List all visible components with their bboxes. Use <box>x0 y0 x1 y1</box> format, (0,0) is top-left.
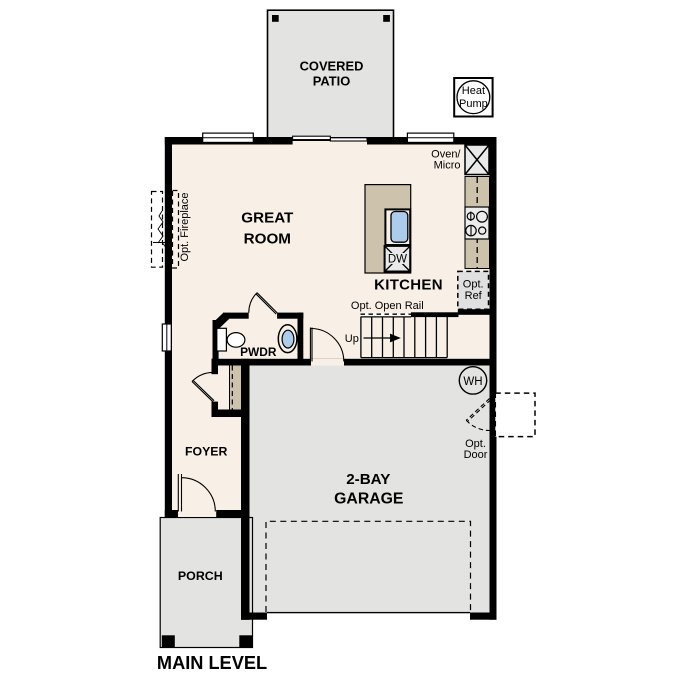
svg-text:Pump: Pump <box>459 98 488 110</box>
svg-text:Door: Door <box>464 449 488 461</box>
svg-text:KITCHEN: KITCHEN <box>374 277 443 294</box>
svg-text:PORCH: PORCH <box>178 569 223 583</box>
svg-text:GREAT: GREAT <box>241 210 294 227</box>
svg-text:MAIN LEVEL: MAIN LEVEL <box>157 653 267 673</box>
svg-text:Heat: Heat <box>462 85 485 97</box>
svg-text:COVERED: COVERED <box>300 59 364 74</box>
svg-text:ROOM: ROOM <box>244 230 291 247</box>
svg-text:Up: Up <box>345 333 359 345</box>
svg-text:DW: DW <box>388 254 407 266</box>
svg-text:FOYER: FOYER <box>185 444 227 458</box>
svg-text:PATIO: PATIO <box>313 74 350 89</box>
svg-text:Opt. Open Rail: Opt. Open Rail <box>351 300 424 312</box>
svg-text:Opt. Fireplace: Opt. Fireplace <box>179 192 191 261</box>
svg-text:Opt.: Opt. <box>465 438 486 450</box>
svg-text:WH: WH <box>463 376 482 388</box>
svg-text:GARAGE: GARAGE <box>334 491 403 508</box>
svg-text:Opt.: Opt. <box>463 279 484 291</box>
svg-text:Micro: Micro <box>434 160 461 172</box>
svg-text:PWDR: PWDR <box>240 345 277 359</box>
svg-text:Ref: Ref <box>465 290 483 302</box>
svg-text:2-BAY: 2-BAY <box>346 471 390 488</box>
